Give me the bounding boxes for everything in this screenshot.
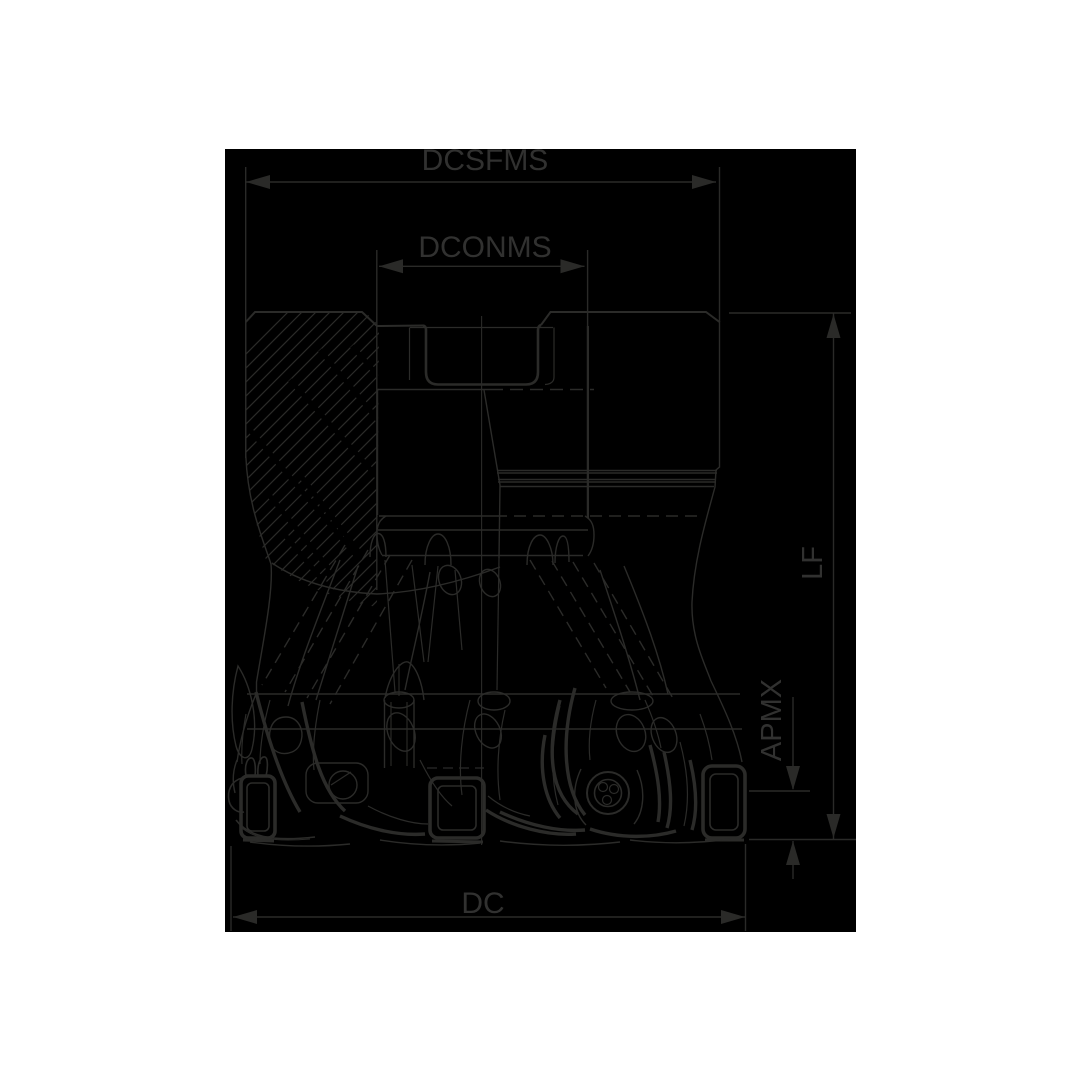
svg-text:DCONMS: DCONMS xyxy=(418,231,551,264)
svg-text:LF: LF xyxy=(797,546,829,580)
svg-text:DC: DC xyxy=(461,887,504,920)
svg-text:DCSFMS: DCSFMS xyxy=(422,144,549,177)
svg-text:APMX: APMX xyxy=(756,679,788,761)
